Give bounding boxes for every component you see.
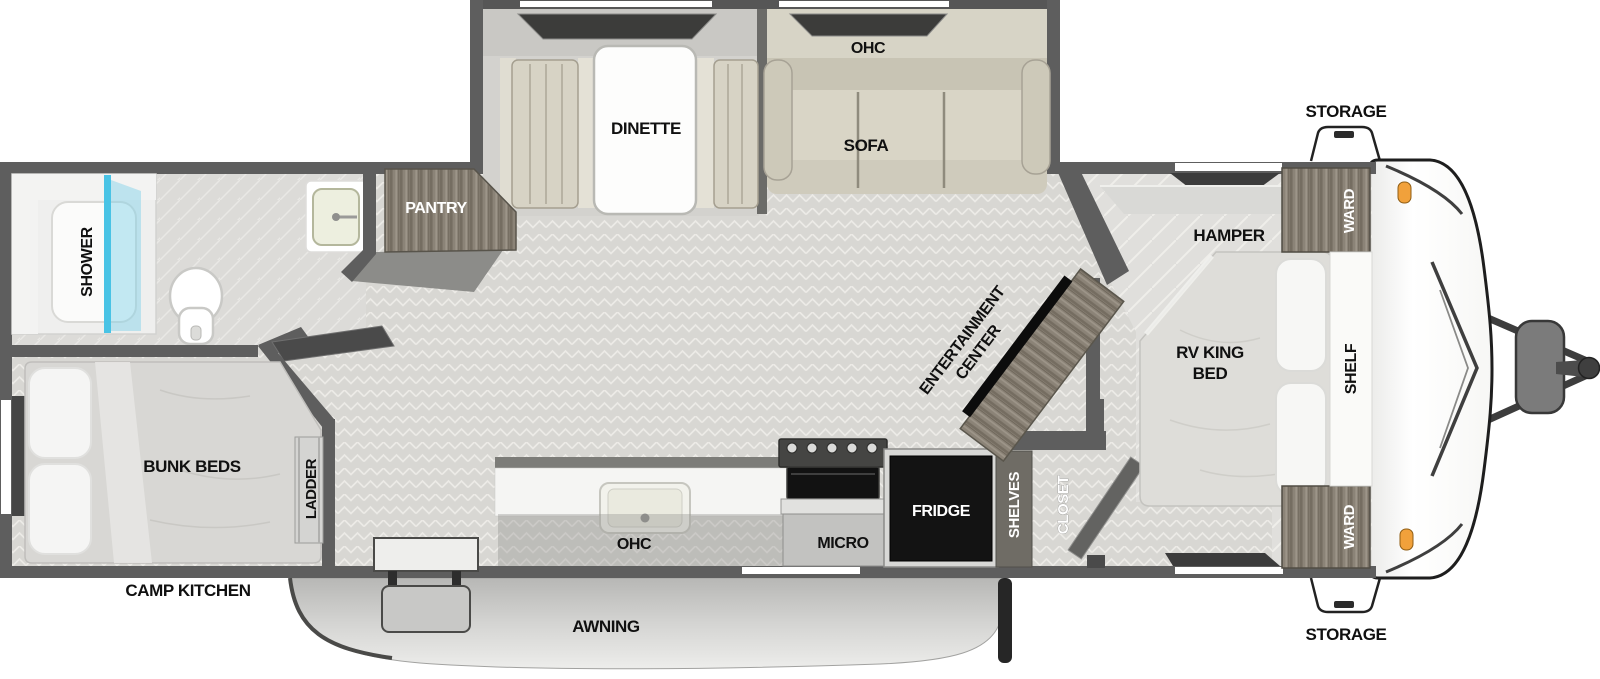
dinette-window-icon <box>518 14 716 39</box>
toilet <box>170 268 222 344</box>
floorplan-canvas: STORAGE STORAGE AWNING CAMP KITCHEN DINE… <box>0 0 1600 679</box>
wall-bunk-right <box>322 419 335 567</box>
front-cap <box>1370 160 1492 578</box>
hitch <box>1488 318 1600 420</box>
sofa-front <box>767 160 1047 194</box>
closet-door-stop <box>1087 555 1105 568</box>
hamper-counter <box>1100 186 1284 214</box>
bedroom-window <box>1175 163 1282 171</box>
entry-steps <box>374 538 478 632</box>
wall-bottom <box>0 566 1376 578</box>
bunk-beds-label: BUNK BEDS <box>143 457 241 476</box>
slideout-window <box>779 1 949 7</box>
slideout-wall-left <box>470 0 483 174</box>
ward-bottom-label: WARD <box>1341 504 1358 549</box>
storage-top-label: STORAGE <box>1306 102 1387 121</box>
micro-label: MICRO <box>817 535 868 552</box>
shower-glass-panel <box>111 180 141 331</box>
camp-kitchen-label: CAMP KITCHEN <box>125 581 250 600</box>
dinette-bench-right <box>714 60 758 208</box>
wall-bath-right <box>363 162 376 254</box>
hamper-label: HAMPER <box>1193 226 1264 245</box>
storage-door-bottom <box>1311 578 1380 612</box>
rv-floorplan: STORAGE STORAGE AWNING CAMP KITCHEN DINE… <box>0 0 1600 679</box>
sofa-back <box>767 58 1047 90</box>
slideout <box>470 0 1060 216</box>
bunk-pillow <box>29 368 91 458</box>
storage-door-top <box>1311 127 1380 161</box>
hitch-ball <box>1579 358 1600 379</box>
sofa-armrest <box>764 60 792 180</box>
shower-label: SHOWER <box>79 226 96 296</box>
camp-kitchen-window <box>1 400 11 514</box>
kitchen-window <box>742 567 860 574</box>
marker-light-icon <box>1398 182 1411 203</box>
shelves-label: SHELVES <box>1006 472 1023 539</box>
wall-bath-bunk <box>0 345 258 357</box>
sofa-ohc-label: OHC <box>851 40 886 57</box>
entry-door-mat <box>1165 553 1280 566</box>
bunk-pillow <box>29 464 91 554</box>
ward-top-label: WARD <box>1341 188 1358 233</box>
ladder-label: LADDER <box>303 458 320 519</box>
dinette-label: DINETTE <box>611 119 681 138</box>
bathroom-sink <box>306 181 368 252</box>
closet-label: CLOSET <box>1055 476 1072 535</box>
kitchen-ohc-label: OHC <box>617 536 652 553</box>
storage-bottom-label: STORAGE <box>1306 625 1387 644</box>
storage-handle-icon <box>1334 601 1354 608</box>
oven-window <box>787 467 879 499</box>
shower-glass <box>104 175 111 333</box>
awning-label: AWNING <box>572 617 640 636</box>
shelf-label: SHELF <box>1343 343 1360 394</box>
fridge-label: FRIDGE <box>912 503 971 520</box>
sofa-label: SOFA <box>844 136 889 155</box>
storage-handle-icon <box>1334 131 1354 138</box>
bed-pillow <box>1276 383 1326 495</box>
pantry-label: PANTRY <box>405 200 467 217</box>
bedroom-window-shade-icon <box>1170 173 1280 187</box>
king-bed-label-line1: RV KING <box>1176 343 1244 362</box>
sofa-armrest <box>1022 60 1050 174</box>
slideout-window <box>520 1 712 7</box>
bed-pillow <box>1276 259 1326 371</box>
entry-door <box>1175 567 1283 574</box>
dinette-bench-trim <box>696 58 714 208</box>
king-bed-label-line2: BED <box>1193 364 1228 383</box>
marker-light-icon <box>1400 529 1413 550</box>
sofa-window-icon <box>790 14 947 36</box>
awning-end-cap <box>998 578 1012 663</box>
faucet-icon <box>332 213 340 221</box>
